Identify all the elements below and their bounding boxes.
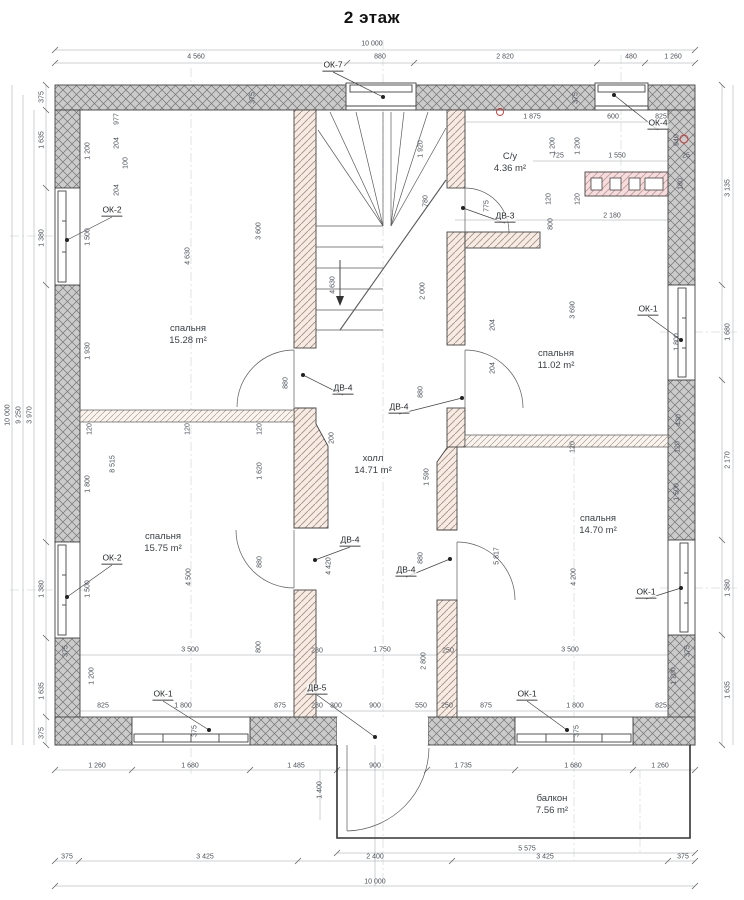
door-mark-label: ДВ-4 — [340, 536, 361, 547]
dimension-label: 1 200 — [89, 667, 96, 685]
dimension-label: 4 630 — [330, 276, 337, 294]
room-label: спальня11.02 m² — [538, 348, 575, 372]
room-area: 15.75 m² — [144, 543, 182, 555]
dimension-label: 120 — [675, 441, 682, 453]
dimension-label: 120 — [546, 193, 553, 205]
dimension-label: 1 485 — [287, 763, 305, 770]
dimension-label: 1 875 — [523, 114, 541, 121]
dimension-label: 204 — [490, 362, 497, 374]
dimension-label: 875 — [274, 703, 286, 710]
dimension-label: 1 200 — [550, 137, 557, 155]
dimension-label: 1 260 — [651, 763, 669, 770]
balcony-door-opening — [337, 717, 428, 745]
dimension-label: 1 200 — [671, 667, 678, 685]
room-area: 4.36 m² — [494, 163, 526, 175]
window-mark-point — [65, 238, 69, 242]
dimension-label: 550 — [415, 703, 427, 710]
dimension-label: 1 800 — [566, 703, 584, 710]
dimension-label: 1 800 — [174, 703, 192, 710]
dimension-label: 4 200 — [571, 568, 578, 586]
dimension-label: 204 — [114, 137, 121, 149]
door-arc-dv4-ll — [236, 530, 294, 588]
dimension-label: 1 800 — [674, 333, 681, 351]
window-mark-label: ОК-2 — [101, 206, 122, 217]
dimension-label: 204 — [490, 319, 497, 331]
room-area: 14.70 m² — [579, 525, 617, 537]
window-ok4 — [595, 83, 648, 110]
dimension-label: 4 630 — [185, 247, 192, 265]
window-ok7 — [346, 83, 416, 110]
room-label: спальня14.70 m² — [579, 513, 617, 537]
dimension-label: 10 000 — [361, 41, 382, 48]
room-area: 15.28 m² — [169, 335, 207, 347]
room-label: спальня15.75 m² — [144, 531, 182, 555]
dimension-label: 780 — [423, 195, 430, 207]
dimension-label: 204 — [114, 184, 121, 196]
dimension-label: 120 — [87, 423, 94, 435]
dimension-label: 2 820 — [496, 54, 514, 61]
dimension-label: 3 600 — [256, 222, 263, 240]
dimension-label: 880 — [257, 556, 264, 568]
dimension-label: 375 — [63, 645, 70, 657]
room-label: балкон7.56 m² — [536, 793, 568, 817]
room-area: 7.56 m² — [536, 805, 568, 817]
window-mark-point — [612, 93, 616, 97]
floor-plan-page: 2 этаж спальня15.28 m²спальня11.02 m²С/у… — [0, 0, 744, 900]
dimension-label: 940 — [674, 134, 681, 146]
dimension-label: 480 — [625, 54, 637, 61]
dimension-label: 2 400 — [366, 854, 384, 861]
dimension-label: 3 970 — [27, 406, 34, 424]
dimension-label: 250 — [442, 648, 454, 655]
dimension-label: 250 — [441, 703, 453, 710]
thin-partitions — [80, 410, 668, 447]
dimension-label: 775 — [484, 200, 491, 212]
dimension-label: 1 200 — [85, 142, 92, 160]
dimension-label: 375 — [574, 725, 581, 737]
dimension-label: 375 — [39, 727, 46, 739]
door-mark-label: ДВ-4 — [396, 566, 417, 577]
door-mark-label: ДВ-5 — [307, 684, 328, 695]
dimension-label: 10 000 — [364, 879, 385, 886]
dimension-label: 1 380 — [725, 579, 732, 597]
dimension-label: 375 — [39, 91, 46, 103]
window-mark-point — [65, 595, 69, 599]
window-mark-label: ОК-1 — [516, 690, 537, 701]
dimension-label: 3 425 — [536, 854, 554, 861]
dimension-label: 120 — [570, 441, 577, 453]
window-mark-point — [565, 728, 569, 732]
window-mark-point — [381, 95, 385, 99]
dimension-label: 880 — [418, 386, 425, 398]
dimension-label: 100 — [123, 157, 130, 169]
dimension-label: 880 — [374, 54, 386, 61]
dimension-label: 300 — [330, 703, 342, 710]
dimension-label: 1 400 — [317, 781, 324, 799]
dimension-label: 200 — [329, 432, 336, 444]
staircase — [316, 112, 446, 330]
dimension-label: 1 500 — [85, 228, 92, 246]
room-label: С/у4.36 m² — [494, 151, 526, 175]
dimension-label: 1 260 — [88, 763, 106, 770]
dimension-label: 1 930 — [85, 342, 92, 360]
door-mark-point — [460, 396, 464, 400]
dimension-label: 1 200 — [575, 137, 582, 155]
dimension-label: 1 590 — [424, 468, 431, 486]
window-mark-label: ОК-1 — [152, 690, 173, 701]
dimension-label: 1 735 — [454, 763, 472, 770]
dimension-label: 4 560 — [187, 54, 205, 61]
dimension-label: 9 250 — [16, 406, 23, 424]
dimension-label: 1 380 — [39, 229, 46, 247]
door-mark-point — [448, 557, 452, 561]
interior-walls — [294, 110, 540, 717]
dimension-label: 4 500 — [186, 568, 193, 586]
door-mark-point — [313, 558, 317, 562]
dimension-label: 1 260 — [664, 54, 682, 61]
door-arc-dv4-lr — [457, 542, 515, 600]
dimension-label: 375 — [573, 92, 580, 104]
window-mark-label: ОК-7 — [322, 61, 343, 72]
dimension-label: 3 500 — [181, 647, 199, 654]
dimension-label: 120 — [257, 423, 264, 435]
dimension-label: 1 680 — [564, 763, 582, 770]
dimension-label: 1 680 — [725, 323, 732, 341]
dimension-label: 375 — [61, 854, 73, 861]
dimension-label: 1 550 — [608, 153, 626, 160]
room-label: спальня15.28 m² — [169, 323, 207, 347]
dimension-label: 3 500 — [561, 647, 579, 654]
dimension-label: 430 — [676, 414, 683, 426]
door-mark-leader — [315, 547, 350, 560]
dimension-label: 2 170 — [725, 451, 732, 469]
dimension-label: 375 — [192, 725, 199, 737]
dimension-label: 1 635 — [725, 681, 732, 699]
dimension-label: 2 180 — [603, 213, 621, 220]
dimension-label: 25 — [682, 153, 690, 160]
dimension-label: 1 920 — [418, 140, 425, 158]
dimension-label: 825 — [97, 703, 109, 710]
dimension-label: 825 — [655, 703, 667, 710]
balcony-outline — [337, 745, 690, 838]
dimension-label: 375 — [677, 854, 689, 861]
dimension-label: 180 — [678, 178, 685, 190]
dimension-label: 3 690 — [570, 301, 577, 319]
window-mark-point — [679, 586, 683, 590]
dimension-label: 1 500 — [674, 483, 681, 501]
dimension-label: 4 420 — [326, 557, 333, 575]
dimension-label: 900 — [369, 703, 381, 710]
dimension-label: 880 — [283, 377, 290, 389]
dimension-label: 2 800 — [421, 652, 428, 670]
room-label: холл14.71 m² — [354, 453, 392, 477]
dimension-label: 1 635 — [39, 131, 46, 149]
dimension-label: 800 — [548, 218, 555, 230]
dimension-label: 800 — [256, 641, 263, 653]
dimension-label: 1 750 — [373, 647, 391, 654]
dimension-label: 1 680 — [181, 763, 199, 770]
door-mark-point — [373, 735, 377, 739]
page-title: 2 этаж — [0, 8, 744, 28]
door-mark-label: ДВ-4 — [389, 403, 410, 414]
door-mark-label: ДВ-3 — [495, 212, 516, 223]
dimension-label: 600 — [607, 114, 619, 121]
dimension-label: 5 817 — [494, 547, 501, 565]
dimension-label: 3 135 — [725, 179, 732, 197]
dimension-label: 280 — [311, 648, 323, 655]
door-arc-dv4-ur — [465, 350, 523, 408]
dimension-label: 10 000 — [5, 404, 12, 425]
door-mark-point — [301, 373, 305, 377]
dimension-label: 1 500 — [85, 580, 92, 598]
dimension-label: 8 515 — [110, 455, 117, 473]
door-arc-dv5 — [347, 748, 429, 831]
dimension-label: 1 380 — [39, 580, 46, 598]
dimension-label: 375 — [250, 92, 257, 104]
window-mark-label: ОК-1 — [635, 588, 656, 599]
window-ok1-right-upper — [668, 285, 695, 380]
dimension-label: 1 635 — [39, 682, 46, 700]
door-mark-label: ДВ-4 — [333, 384, 354, 395]
dimension-label: 3 425 — [196, 854, 214, 861]
dimension-label: 900 — [369, 763, 381, 770]
window-mark-point — [207, 728, 211, 732]
dimension-label: 5 575 — [518, 846, 536, 853]
vent-block — [585, 172, 668, 196]
window-mark-label: ОК-4 — [647, 119, 668, 130]
window-mark-label: ОК-1 — [637, 305, 658, 316]
door-mark-point — [461, 206, 465, 210]
dimension-label: 977 — [114, 113, 121, 125]
dimension-label: 280 — [311, 703, 323, 710]
dimension-label: 375 — [685, 645, 692, 657]
stair-direction-arrow — [336, 296, 344, 306]
window-mark-label: ОК-2 — [101, 554, 122, 565]
window-ok2-upper — [55, 188, 80, 285]
dimension-label: 2 000 — [420, 282, 427, 300]
dimension-label: 120 — [575, 193, 582, 205]
room-area: 14.71 m² — [354, 465, 392, 477]
dimension-label: 875 — [480, 703, 492, 710]
dimension-label: 120 — [185, 423, 192, 435]
room-area: 11.02 m² — [538, 360, 575, 372]
dimension-label: 1 800 — [85, 475, 92, 493]
dimension-label: 880 — [418, 552, 425, 564]
dimension-label: 1 620 — [257, 462, 264, 480]
